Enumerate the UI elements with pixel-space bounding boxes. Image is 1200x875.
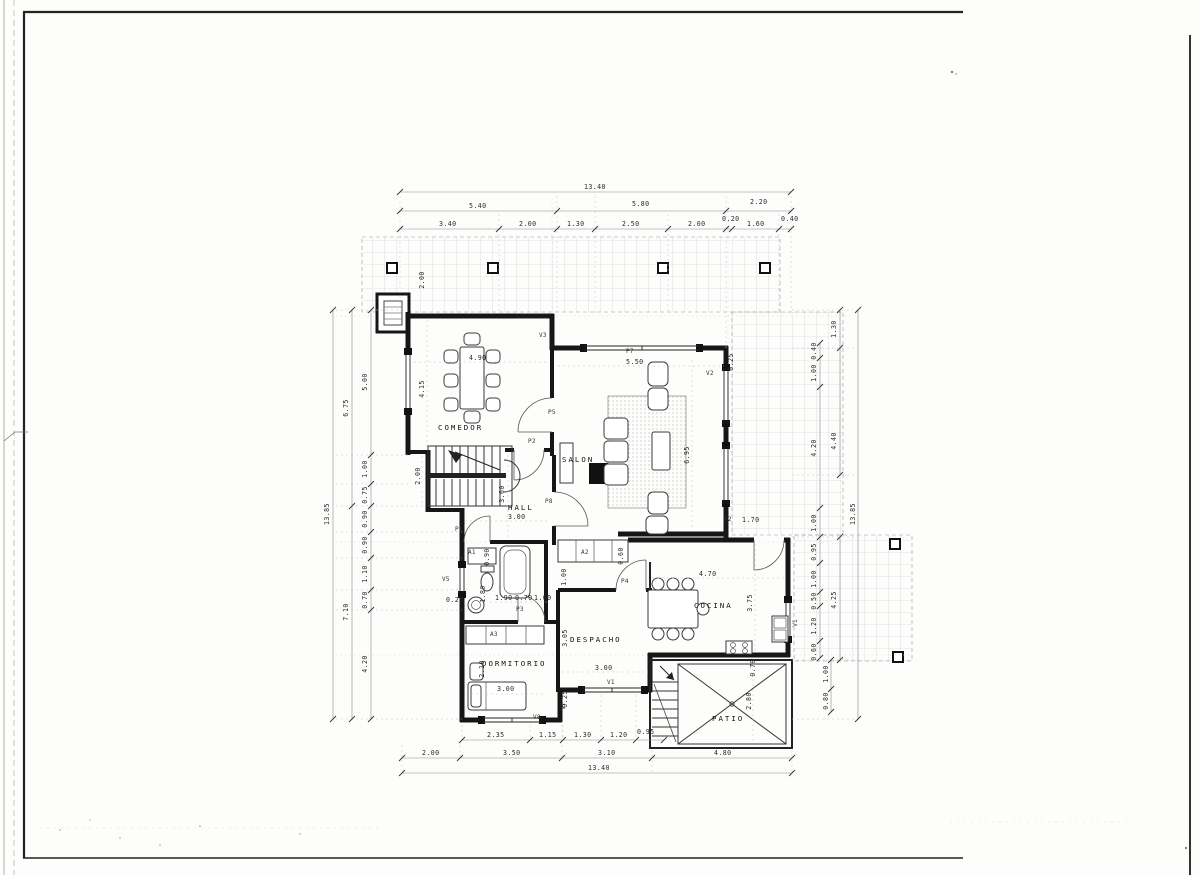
dim-label: 1.60 xyxy=(747,220,764,228)
window-salon-north xyxy=(584,346,700,350)
door-p5 xyxy=(518,398,552,432)
door-label: P5 xyxy=(548,409,556,416)
window-label: V1 xyxy=(607,679,615,686)
dim-label: 6.75 xyxy=(342,399,350,416)
dim-label: 2.10 xyxy=(478,660,486,677)
dim-label: 5.40 xyxy=(469,202,486,210)
dim-label: 1.20 xyxy=(610,731,627,739)
dim-label: 0.25 xyxy=(446,596,463,604)
dim-label: 3.75 xyxy=(746,594,754,611)
window-label: V8 xyxy=(533,714,541,721)
dim-label: 3.00 xyxy=(508,513,525,521)
dim-label: 1.00 xyxy=(822,665,830,682)
porch-column xyxy=(893,652,903,662)
closet-label: A1 xyxy=(468,549,476,556)
sofa-module xyxy=(604,441,628,462)
dim-label: 2.35 xyxy=(487,731,504,739)
dim-label: 1.70 xyxy=(742,516,759,524)
main-staircase xyxy=(428,446,520,506)
sofa-module xyxy=(604,464,628,485)
dim-label: 5.50 xyxy=(626,358,643,366)
dim-label: 2.00 xyxy=(418,271,426,288)
drawing-sheet: 13.40 5.40 5.80 2.20 3.40 2.00 1.30 2.50… xyxy=(0,0,1200,875)
window-despacho-south xyxy=(582,688,643,692)
window-label: V1 xyxy=(792,619,799,627)
dim-label: 1.20 xyxy=(810,617,818,634)
door-label: P3 xyxy=(516,606,524,613)
armchair xyxy=(648,492,668,514)
room-label-comedor: COMEDOR xyxy=(438,423,483,432)
dim-label: 0.90 xyxy=(483,548,491,565)
dim-label: 0.90 xyxy=(361,510,369,527)
chimney xyxy=(377,294,409,332)
dim-label: 3.00 xyxy=(595,664,612,672)
window-label: V2 xyxy=(724,516,732,523)
door-p1 xyxy=(464,516,490,542)
dim-label: 4.90 xyxy=(469,354,486,362)
window-label: V5 xyxy=(442,576,450,583)
bathtub xyxy=(500,546,530,598)
room-label-hall: HALL xyxy=(508,503,534,512)
door-label: P1 xyxy=(455,526,463,533)
dim-label: 6.95 xyxy=(683,446,691,463)
dim-label: 0.40 xyxy=(781,215,798,223)
dim-label: 0.80 xyxy=(822,692,830,709)
door-p2 xyxy=(514,450,544,480)
dim-label: 3.50 xyxy=(503,749,520,757)
dim-label: 0.70 xyxy=(749,659,757,676)
closet-a3 xyxy=(466,626,544,644)
armchair xyxy=(648,362,668,386)
salon-set xyxy=(560,362,686,534)
dim-label: 1.00 xyxy=(810,570,818,587)
dim-label: 0.50 xyxy=(810,592,818,609)
room-label-cocina: COCINA xyxy=(694,601,733,610)
dim-label: 2.00 xyxy=(688,220,705,228)
dim-label: 4.80 xyxy=(714,749,731,757)
dim-label: 13.40 xyxy=(584,183,606,191)
sheet-frame xyxy=(4,0,1190,875)
dim-label: 1.30 xyxy=(830,320,838,337)
window-v2-upper xyxy=(724,368,728,424)
dim-label: 2.00 xyxy=(414,467,422,484)
window-label: V2 xyxy=(706,370,714,377)
window-v5 xyxy=(460,567,464,593)
window-comedor-west xyxy=(406,354,410,410)
dim-label: 1.15 xyxy=(539,731,556,739)
closet-label: A3 xyxy=(490,631,498,638)
dim-label: 3.60 xyxy=(498,485,506,502)
dim-label: 4.20 xyxy=(361,655,369,672)
dim-label: 4.20 xyxy=(810,439,818,456)
window-label: V7 xyxy=(560,702,567,710)
dim-label: 0.60 xyxy=(617,547,625,564)
dim-label: 1.00 xyxy=(810,364,818,381)
coffee-table xyxy=(652,432,670,470)
dining-set xyxy=(444,333,500,423)
dim-label: 13.85 xyxy=(323,503,331,525)
dim-label: 1.00 xyxy=(361,460,369,477)
floor-plan-svg: 13.40 5.40 5.80 2.20 3.40 2.00 1.30 2.50… xyxy=(0,0,1200,875)
dim-label: 2.20 xyxy=(750,198,767,206)
dim-label: 1.30 xyxy=(574,731,591,739)
room-label-patio: PATIO xyxy=(712,714,744,723)
door-p8 xyxy=(554,492,588,526)
porch-column xyxy=(488,263,498,273)
dims-left: 5.00 1.00 0.75 0.90 0.90 1.10 0.70 4.20 … xyxy=(323,307,462,722)
dim-label: 0.60 xyxy=(810,643,818,660)
dim-label: 0.40 xyxy=(810,342,818,359)
dim-label: 4.40 xyxy=(830,432,838,449)
dim-label: 5.80 xyxy=(632,200,649,208)
window-v2-lower xyxy=(724,446,728,504)
door-label: P8 xyxy=(545,498,553,505)
porch-column xyxy=(658,263,668,273)
dim-label: 0.70 xyxy=(515,594,532,602)
dim-label: 0.25 xyxy=(727,353,735,370)
porch-column xyxy=(890,539,900,549)
window-label: V3 xyxy=(539,332,547,339)
room-label-salon: SALON xyxy=(562,455,594,464)
dim-label: 2.80 xyxy=(745,692,753,709)
door-label: P4 xyxy=(621,578,629,585)
dim-label: 5.00 xyxy=(361,373,369,390)
sink xyxy=(772,616,788,642)
dim-label: 3.00 xyxy=(497,685,514,693)
dim-label: 1.00 xyxy=(810,514,818,531)
dim-label: 3.05 xyxy=(561,629,569,646)
door-label: P2 xyxy=(528,438,536,445)
porch-column xyxy=(760,263,770,273)
dim-label: 3.10 xyxy=(598,749,615,757)
porch-column xyxy=(387,263,397,273)
dim-label: 2.00 xyxy=(422,749,439,757)
patio-staircase xyxy=(652,666,678,742)
dim-label: 4.25 xyxy=(830,591,838,608)
dim-label: 0.20 xyxy=(722,215,739,223)
armchair xyxy=(646,516,668,534)
dim-label: 0.95 xyxy=(637,728,654,736)
dim-label: 0.75 xyxy=(361,486,369,503)
dim-label: 3.40 xyxy=(439,220,456,228)
dim-label: 0.95 xyxy=(810,543,818,560)
dim-label: 1.10 xyxy=(361,565,369,582)
room-label-dormitorio: DORMITORIO xyxy=(482,659,547,668)
dim-label: 13.85 xyxy=(849,503,857,525)
dim-label: 2.00 xyxy=(519,220,536,228)
dim-label: 4.15 xyxy=(418,380,426,397)
kitchen-fixtures xyxy=(648,578,788,654)
door-cocina xyxy=(754,540,784,570)
dim-label: 7.10 xyxy=(342,603,350,620)
dim-label: 0.90 xyxy=(361,536,369,553)
door-label: P7 xyxy=(626,348,634,355)
dim-label: 2.50 xyxy=(622,220,639,228)
sofa-module xyxy=(604,418,628,439)
dim-label: 4.70 xyxy=(699,570,716,578)
terrace-east xyxy=(732,312,843,535)
dim-label: 1.80 xyxy=(479,585,487,602)
dim-label: 1.00 xyxy=(560,568,568,585)
dim-label: 1.90 xyxy=(495,594,512,602)
kitchen-table xyxy=(648,590,698,628)
stove xyxy=(726,641,752,654)
pillow xyxy=(471,685,481,707)
dim-label: 13.40 xyxy=(588,764,610,772)
dim-label: 1.00 xyxy=(534,594,551,602)
closet-label: A2 xyxy=(581,549,589,556)
room-label-despacho: DESPACHO xyxy=(570,635,622,644)
dim-label: 0.70 xyxy=(361,591,369,608)
armchair xyxy=(648,388,668,410)
dim-label: 1.30 xyxy=(567,220,584,228)
